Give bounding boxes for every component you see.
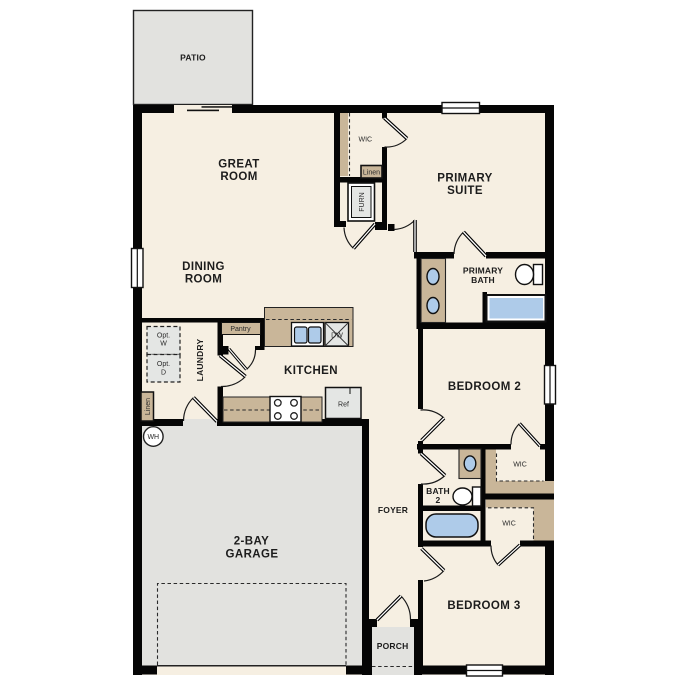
svg-text:PATIO: PATIO bbox=[180, 53, 206, 63]
svg-text:WIC: WIC bbox=[513, 461, 527, 468]
svg-text:SUITE: SUITE bbox=[447, 185, 483, 197]
svg-text:ROOM: ROOM bbox=[185, 274, 222, 286]
svg-text:Ref: Ref bbox=[338, 402, 349, 409]
svg-text:ROOM: ROOM bbox=[220, 171, 257, 183]
svg-text:DW: DW bbox=[331, 333, 343, 340]
svg-text:2-BAY: 2-BAY bbox=[234, 536, 269, 548]
svg-text:BATH: BATH bbox=[471, 275, 495, 285]
svg-text:Linen: Linen bbox=[145, 398, 152, 415]
svg-text:Linen: Linen bbox=[363, 170, 380, 177]
svg-text:LAUNDRY: LAUNDRY bbox=[195, 339, 205, 382]
svg-text:GARAGE: GARAGE bbox=[226, 549, 279, 561]
svg-text:GREAT: GREAT bbox=[218, 159, 259, 171]
svg-text:DINING: DINING bbox=[182, 261, 225, 273]
svg-text:BEDROOM 2: BEDROOM 2 bbox=[448, 381, 521, 393]
svg-text:FOYER: FOYER bbox=[378, 505, 408, 515]
svg-text:WIC: WIC bbox=[358, 137, 372, 144]
svg-text:Pantry: Pantry bbox=[230, 326, 251, 333]
svg-text:PRIMARY: PRIMARY bbox=[437, 173, 492, 185]
svg-text:WH: WH bbox=[147, 434, 159, 441]
svg-text:2: 2 bbox=[436, 495, 441, 505]
svg-text:PORCH: PORCH bbox=[377, 641, 409, 651]
svg-text:D: D bbox=[161, 370, 166, 377]
svg-text:KITCHEN: KITCHEN bbox=[284, 365, 338, 377]
svg-text:BEDROOM 3: BEDROOM 3 bbox=[447, 600, 520, 612]
svg-text:Opt.: Opt. bbox=[157, 361, 170, 368]
svg-text:Opt.: Opt. bbox=[157, 333, 170, 340]
svg-text:W: W bbox=[160, 341, 167, 348]
svg-text:PRIMARY: PRIMARY bbox=[463, 266, 503, 276]
svg-text:FURN: FURN bbox=[359, 192, 366, 211]
svg-text:WIC: WIC bbox=[502, 521, 516, 528]
